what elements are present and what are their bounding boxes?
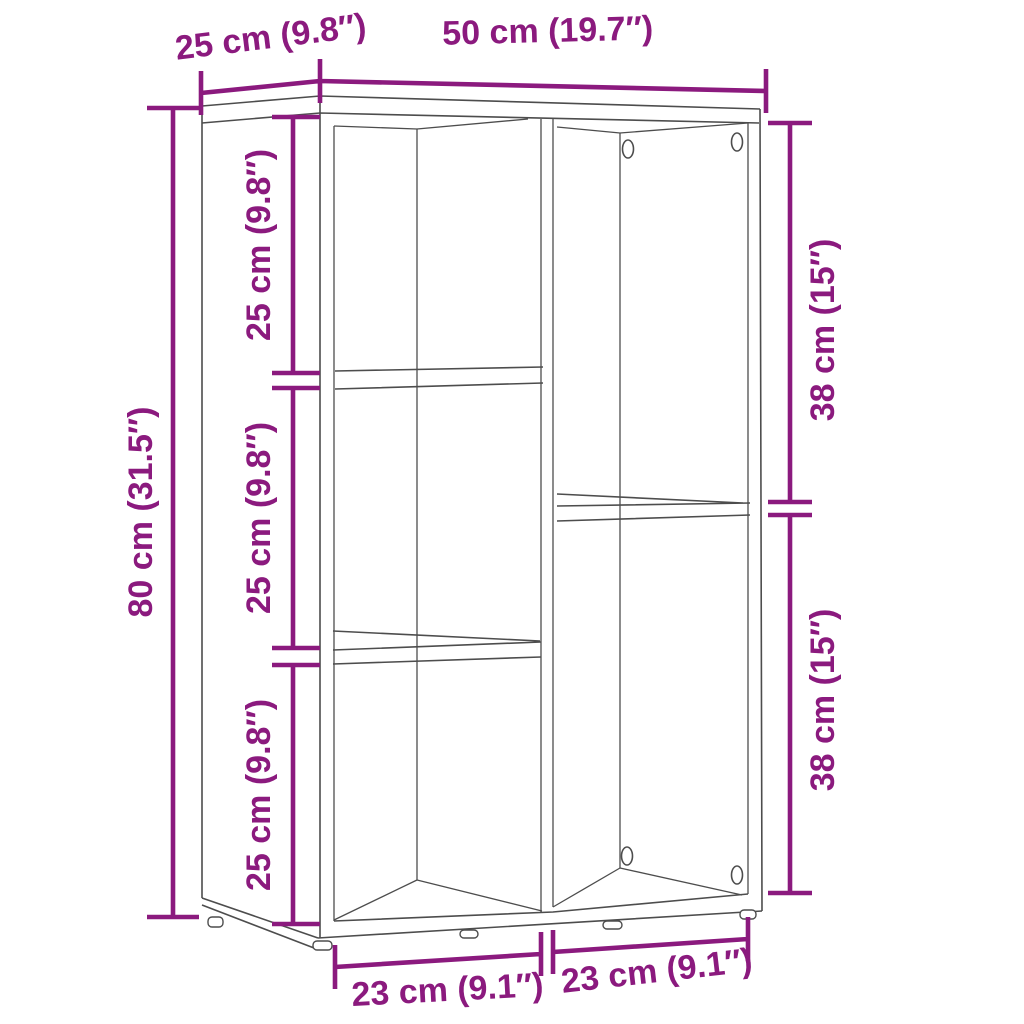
foot xyxy=(313,941,332,950)
label-right-compartment-upper: 38 cm (15″) xyxy=(804,239,842,422)
label-left-height: 80 cm (31.5″) xyxy=(122,407,160,618)
dimension-diagram: 25 cm (9.8″) 50 cm (19.7″) 80 cm (31.5″)… xyxy=(0,0,1024,1024)
dimension-labels: 25 cm (9.8″) 50 cm (19.7″) 80 cm (31.5″)… xyxy=(122,7,842,1014)
cabinet-inner-verticals xyxy=(334,119,748,921)
foot xyxy=(208,917,223,927)
label-top-width: 50 cm (19.7″) xyxy=(442,9,654,53)
hole-icon xyxy=(732,133,743,151)
label-top-depth: 25 cm (9.8″) xyxy=(173,7,368,68)
foot xyxy=(603,921,622,929)
hole-icon xyxy=(623,140,634,158)
label-inner-compartment-middle: 25 cm (9.8″) xyxy=(240,422,278,614)
label-bottom-width-left: 23 cm (9.1″) xyxy=(351,966,545,1014)
right-shelf xyxy=(557,494,750,521)
hole-icon xyxy=(622,847,633,865)
foot xyxy=(460,930,478,938)
label-inner-compartment-top: 25 cm (9.8″) xyxy=(240,149,278,341)
hole-icon xyxy=(732,866,743,884)
cabinet-drawing xyxy=(202,96,762,950)
label-right-compartment-lower: 38 cm (15″) xyxy=(804,609,842,792)
left-shelf-1 xyxy=(335,367,543,389)
label-inner-compartment-bottom: 25 cm (9.8″) xyxy=(240,699,278,891)
back-panel-holes xyxy=(622,133,743,884)
dim-inner-segments-line xyxy=(272,117,320,924)
cabinet-bottom-edges xyxy=(202,894,762,948)
diagram-canvas: 25 cm (9.8″) 50 cm (19.7″) 80 cm (31.5″)… xyxy=(0,0,1024,1024)
left-shelf-2 xyxy=(333,631,541,664)
